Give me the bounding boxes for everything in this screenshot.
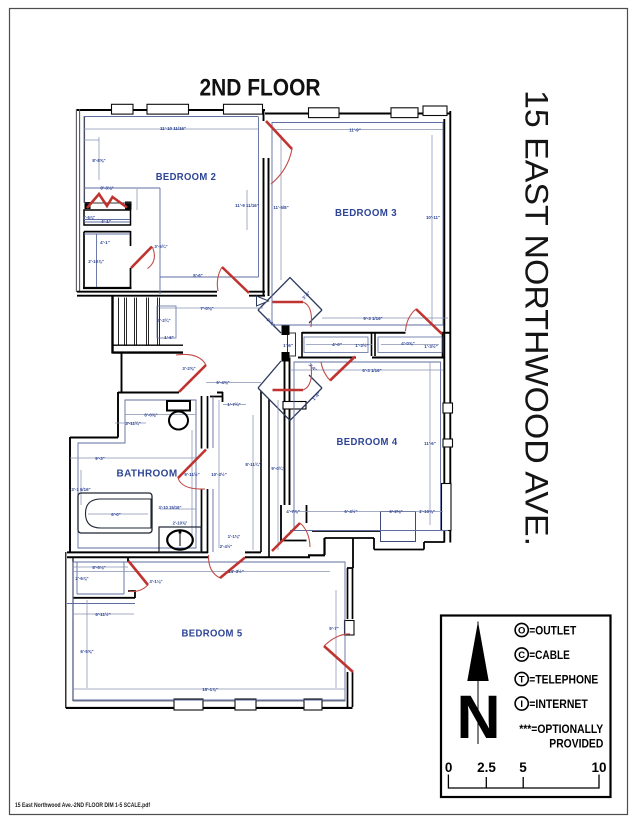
- svg-text:14'-3½": 14'-3½": [228, 569, 244, 574]
- svg-text:4'-0": 4'-0": [332, 342, 342, 347]
- svg-text:C: C: [518, 650, 525, 661]
- svg-text:9'-11½": 9'-11½": [184, 472, 199, 477]
- svg-text:11'-10 11/16": 11'-10 11/16": [160, 126, 186, 131]
- svg-text:15 EAST NORTHWOOD AVE.: 15 EAST NORTHWOOD AVE.: [519, 90, 555, 546]
- svg-text:1'-3½": 1'-3½": [424, 343, 437, 349]
- svg-text:BEDROOM 4: BEDROOM 4: [337, 436, 398, 448]
- svg-text:3'-1⅛": 3'-1⅛": [149, 579, 162, 584]
- svg-text:6'-4⅝": 6'-4⅝": [216, 380, 229, 385]
- svg-text:1'-6": 1'-6": [164, 335, 173, 340]
- svg-text:3'-11¾": 3'-11¾": [125, 421, 140, 426]
- svg-text:=INTERNET: =INTERNET: [529, 697, 588, 711]
- svg-text:O: O: [518, 626, 525, 637]
- svg-text:2'-10⅝": 2'-10⅝": [173, 521, 188, 526]
- svg-text:10'-11": 10'-11": [426, 215, 440, 220]
- svg-text:T: T: [519, 675, 525, 686]
- svg-text:10'-2½": 10'-2½": [211, 472, 227, 477]
- svg-text:4'-7⅞": 4'-7⅞": [286, 509, 299, 514]
- svg-text:9'-7": 9'-7": [329, 626, 338, 631]
- svg-text:3'-1 5/16": 3'-1 5/16": [71, 487, 90, 492]
- svg-text:=CABLE: =CABLE: [529, 648, 570, 662]
- svg-text:10: 10: [591, 760, 606, 775]
- svg-text:I: I: [520, 699, 523, 710]
- svg-text:6'-3 1/16": 6'-3 1/16": [362, 368, 381, 373]
- svg-text:3'-10 15/16": 3'-10 15/16": [158, 505, 181, 510]
- svg-text:8'-11¾": 8'-11¾": [245, 462, 260, 467]
- svg-text:6'-0⅝": 6'-0⅝": [144, 413, 157, 418]
- svg-text:1'-7¾": 1'-7¾": [227, 402, 240, 407]
- svg-text:15'-1⅞": 15'-1⅞": [202, 687, 218, 692]
- svg-text:2'-10⅞": 2'-10⅞": [88, 259, 104, 264]
- svg-text:3'-5¾": 3'-5¾": [154, 244, 167, 249]
- svg-text:15 East Northwood Ave.-2ND FLO: 15 East Northwood Ave.-2ND FLOOR DIM 1-5…: [15, 802, 151, 809]
- svg-text:2'-6⅞": 2'-6⅞": [75, 576, 88, 581]
- svg-text:2.5: 2.5: [477, 760, 496, 775]
- svg-text:6'-4½": 6'-4½": [344, 509, 357, 514]
- svg-text:11'-5/8": 11'-5/8": [273, 205, 288, 210]
- svg-text:9'-3": 9'-3": [95, 456, 104, 461]
- svg-text:11'-6": 11'-6": [424, 441, 436, 446]
- svg-text:N: N: [456, 683, 500, 751]
- svg-text:0: 0: [445, 760, 453, 775]
- svg-text:2ND FLOOR: 2ND FLOOR: [200, 75, 321, 102]
- svg-text:BEDROOM 3: BEDROOM 3: [335, 207, 397, 219]
- svg-text:3'-2⅝": 3'-2⅝": [182, 366, 195, 371]
- svg-text:1'-1⅜": 1'-1⅜": [228, 534, 241, 539]
- svg-text:1'-6": 1'-6": [283, 343, 293, 348]
- svg-text:3'-2¾": 3'-2¾": [157, 318, 170, 323]
- svg-text:***=OPTIONALLY: ***=OPTIONALLY: [519, 722, 603, 736]
- svg-text:1'-10⅜": 1'-10⅜": [419, 509, 435, 514]
- svg-text:4'-0⅝": 4'-0⅝": [401, 341, 414, 346]
- svg-text:4'-1": 4'-1": [100, 240, 110, 245]
- svg-text:1'-6⅞": 1'-6⅞": [83, 215, 96, 220]
- svg-text:5: 5: [519, 760, 527, 775]
- svg-text:6'-11½": 6'-11½": [95, 612, 110, 617]
- svg-text:=OUTLET: =OUTLET: [529, 623, 577, 637]
- svg-text:1'-3½": 1'-3½": [355, 342, 368, 348]
- svg-text:6'-2⅜": 6'-2⅜": [389, 509, 402, 514]
- svg-text:9'-3 1/16": 9'-3 1/16": [363, 316, 382, 321]
- svg-text:11'-9 11/16": 11'-9 11/16": [235, 203, 259, 208]
- svg-text:7'-0⅜": 7'-0⅜": [200, 306, 213, 311]
- svg-text:BEDROOM 2: BEDROOM 2: [156, 171, 217, 183]
- svg-text:6'-0": 6'-0": [111, 512, 120, 517]
- svg-text:11'-9": 11'-9": [349, 128, 361, 133]
- svg-text:BEDROOM 5: BEDROOM 5: [182, 628, 243, 640]
- svg-text:9'-0¾": 9'-0¾": [271, 466, 284, 471]
- svg-text:PROVIDED: PROVIDED: [549, 737, 603, 751]
- svg-text:4'-1": 4'-1": [101, 219, 111, 224]
- svg-text:2'-4½": 2'-4½": [220, 544, 233, 549]
- svg-text:BATHROOM: BATHROOM: [117, 468, 178, 480]
- svg-text:8'-8⅝": 8'-8⅝": [92, 158, 105, 163]
- svg-text:8'-5⅛": 8'-5⅛": [92, 565, 105, 570]
- svg-text:6'-5⅝": 6'-5⅝": [80, 649, 93, 654]
- svg-text:=TELEPHONE: =TELEPHONE: [529, 672, 598, 686]
- svg-text:8'-3⅛": 8'-3⅛": [100, 186, 113, 191]
- svg-text:8'-6": 8'-6": [193, 273, 202, 278]
